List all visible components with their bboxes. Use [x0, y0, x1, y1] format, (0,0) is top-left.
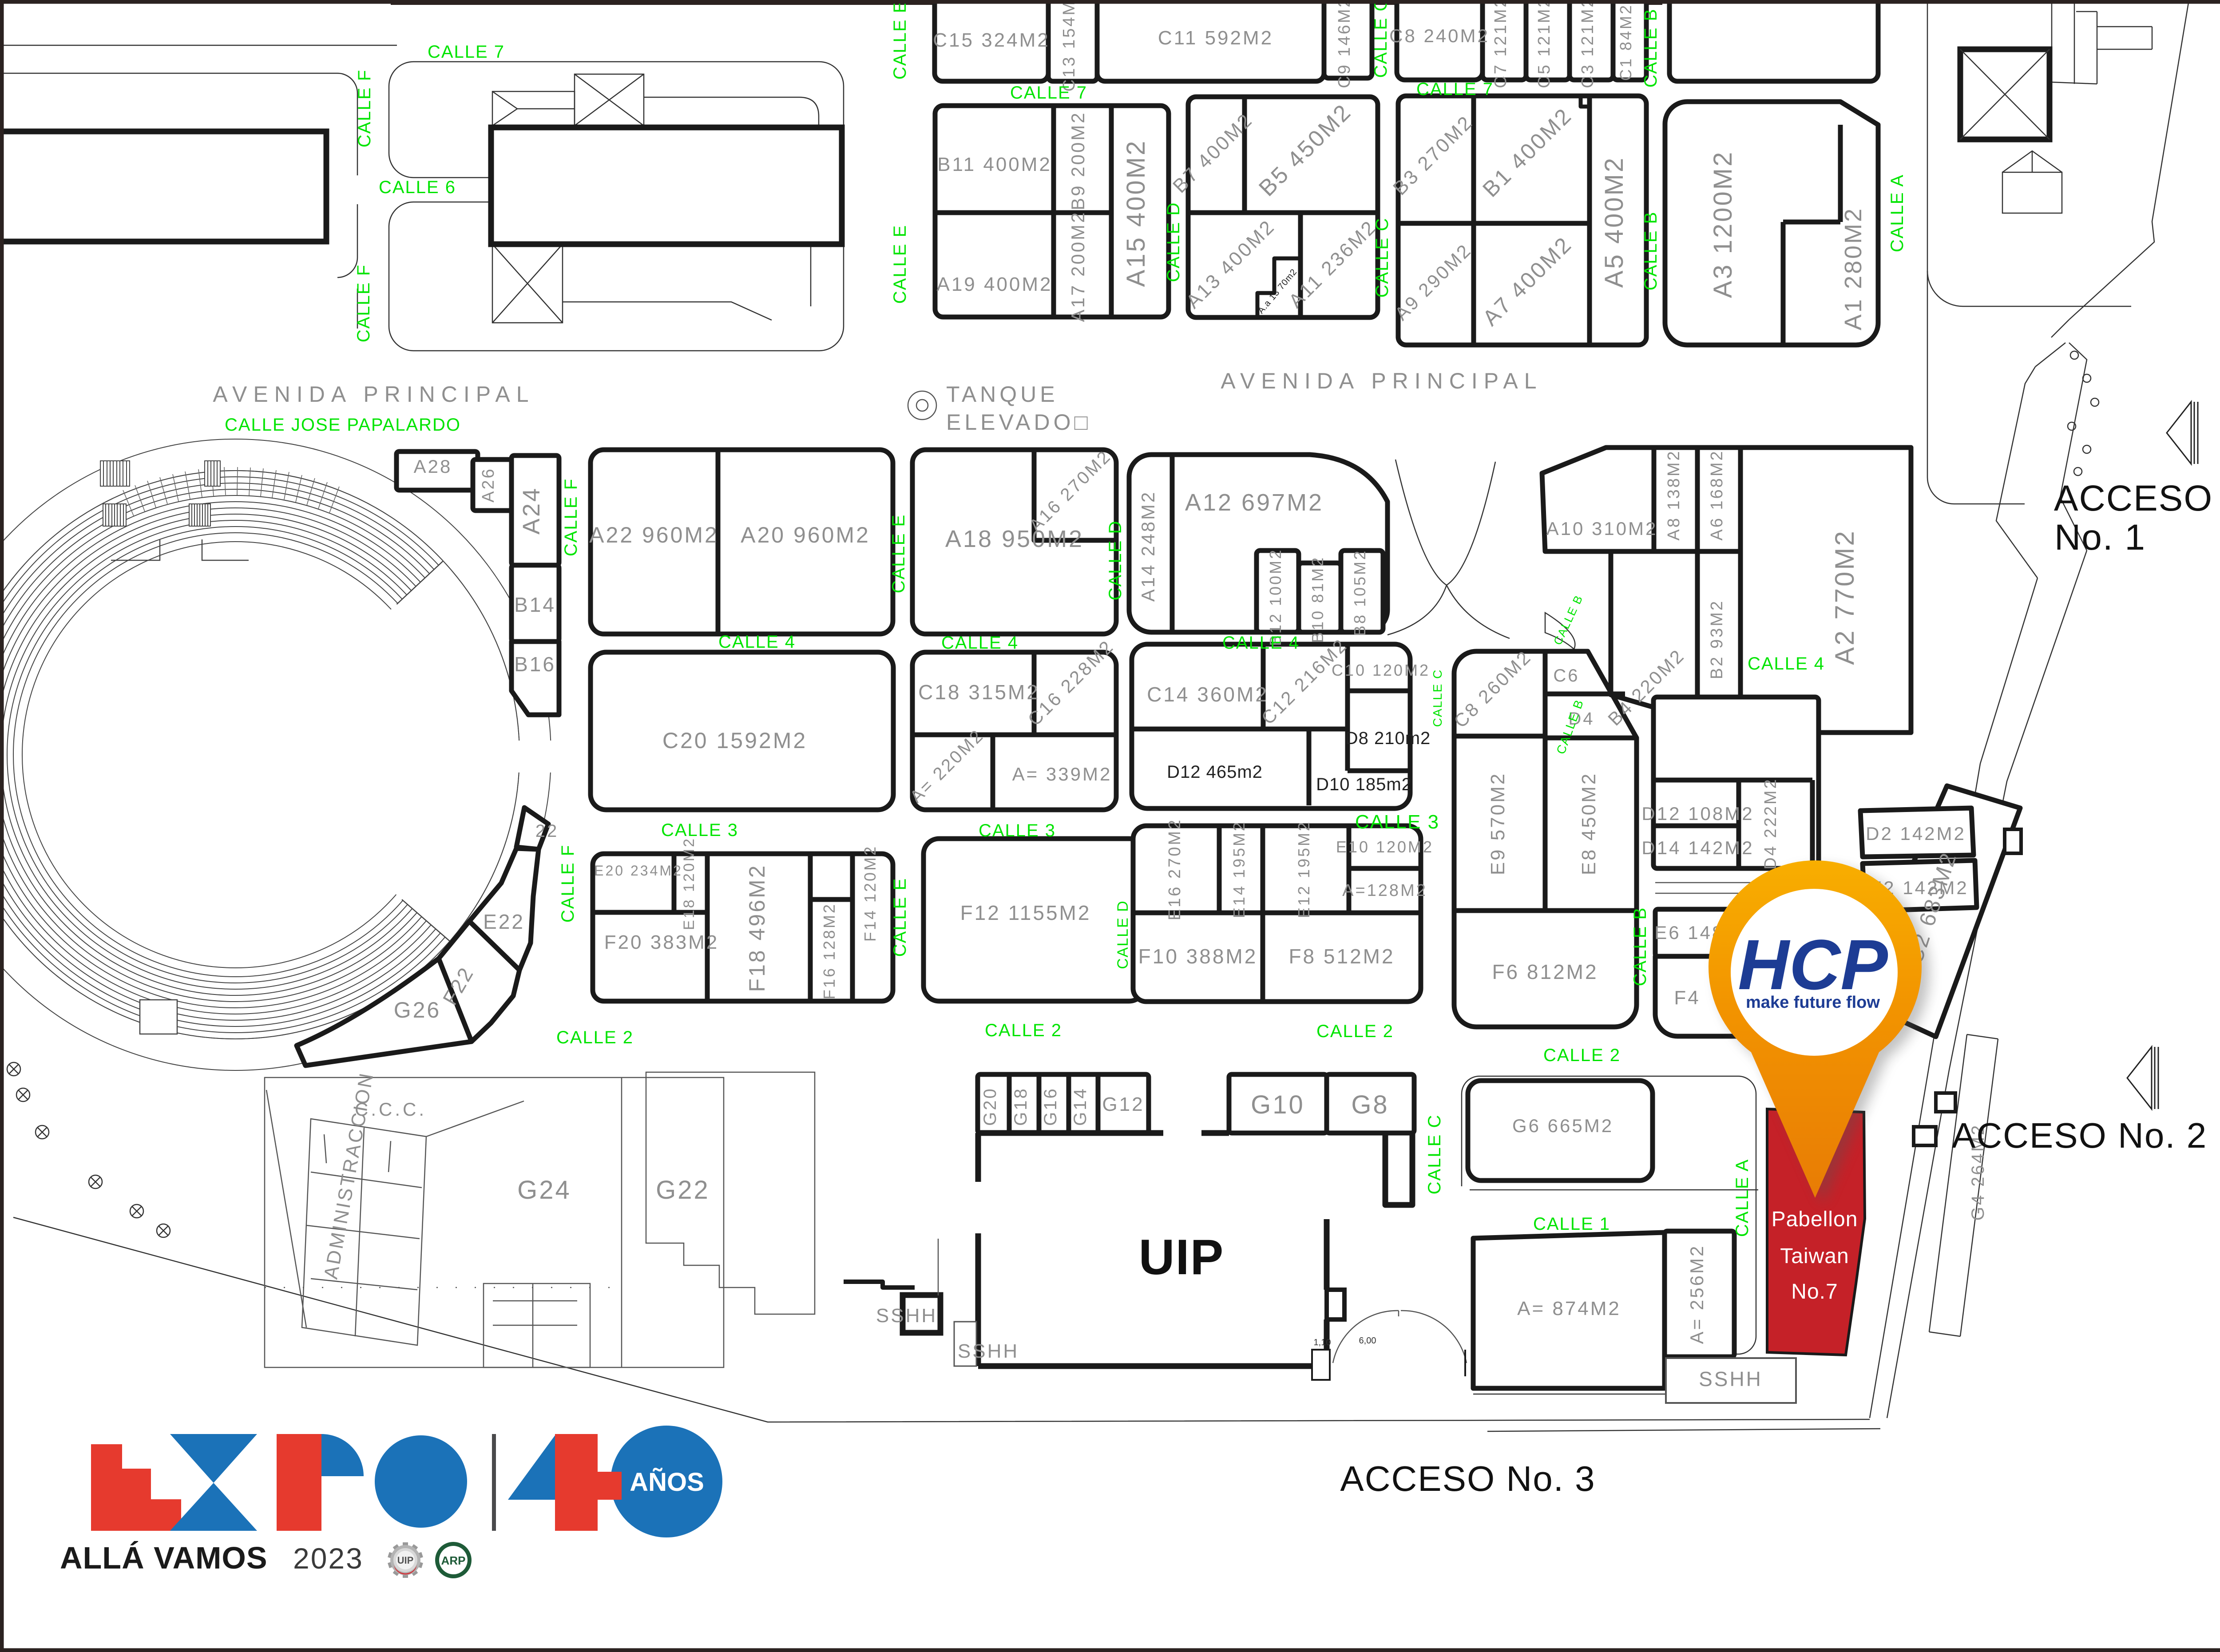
svg-text:CALLE 4: CALLE 4	[1748, 654, 1825, 673]
svg-text:D12 465m2: D12 465m2	[1167, 762, 1263, 782]
svg-text:No. 1: No. 1	[2054, 517, 2146, 558]
svg-text:CALLE 2: CALLE 2	[556, 1028, 634, 1047]
svg-text:CALLE 4: CALLE 4	[941, 633, 1019, 653]
svg-text:CALLE 7: CALLE 7	[428, 42, 505, 62]
svg-text:A5 400M2: A5 400M2	[1600, 156, 1629, 288]
svg-text:No.7: No.7	[1791, 1280, 1838, 1303]
svg-text:E18 120M2: E18 120M2	[681, 837, 698, 930]
svg-text:CALLE B: CALLE B	[1641, 211, 1661, 291]
svg-text:ARP: ARP	[441, 1554, 466, 1567]
svg-text:F14 120M2: F14 120M2	[861, 845, 879, 942]
svg-text:E10 120M2: E10 120M2	[1336, 838, 1434, 856]
svg-text:D8 210m2: D8 210m2	[1345, 729, 1431, 748]
svg-text:TANQUE: TANQUE	[946, 382, 1058, 407]
svg-text:CALLE 1: CALLE 1	[1533, 1214, 1610, 1234]
svg-text:A= 874M2: A= 874M2	[1517, 1298, 1621, 1319]
svg-text:A3 1200M2: A3 1200M2	[1709, 151, 1737, 298]
svg-text:AVENIDA PRINCIPAL: AVENIDA PRINCIPAL	[1221, 368, 1542, 393]
svg-text:22: 22	[535, 821, 559, 841]
svg-text:CALLE D: CALLE D	[1114, 900, 1131, 969]
svg-text:E8 450M2: E8 450M2	[1578, 772, 1600, 876]
svg-text:C9 146M2: C9 146M2	[1335, 0, 1354, 88]
svg-text:D2 142M2: D2 142M2	[1866, 823, 1966, 844]
svg-text:C15 324M2: C15 324M2	[933, 29, 1050, 51]
svg-text:E22: E22	[483, 910, 525, 933]
svg-text:C7 121M2: C7 121M2	[1491, 0, 1510, 88]
svg-text:G22: G22	[656, 1176, 710, 1204]
svg-text:F8 512M2: F8 512M2	[1288, 945, 1395, 968]
svg-text:G10: G10	[1251, 1090, 1305, 1119]
svg-text:CALLE C: CALLE C	[1371, 0, 1391, 78]
svg-text:C18 315M2: C18 315M2	[918, 681, 1040, 704]
svg-text:C8 240M2: C8 240M2	[1389, 25, 1490, 46]
svg-text:A26: A26	[479, 467, 498, 503]
svg-text:CALLE E: CALLE E	[890, 225, 910, 304]
svg-text:A22 960M2: A22 960M2	[589, 523, 719, 547]
svg-text:CALLE B: CALLE B	[1641, 8, 1661, 88]
svg-text:CALLE 6: CALLE 6	[379, 178, 456, 197]
svg-text:CALLE E: CALLE E	[890, 0, 910, 80]
svg-text:A8 138M2: A8 138M2	[1665, 449, 1683, 540]
svg-text:AVENIDA PRINCIPAL: AVENIDA PRINCIPAL	[213, 382, 535, 407]
svg-text:1,10: 1,10	[1314, 1338, 1331, 1347]
svg-text:A14 248M2: A14 248M2	[1138, 491, 1158, 602]
svg-text:ALLÁ VAMOS: ALLÁ VAMOS	[60, 1541, 268, 1575]
svg-text:A12 697M2: A12 697M2	[1185, 489, 1324, 516]
svg-text:G16: G16	[1041, 1087, 1060, 1126]
svg-text:C10 120M2: C10 120M2	[1332, 661, 1430, 679]
svg-text:D10 185m2: D10 185m2	[1316, 775, 1412, 794]
svg-text:F10 388M2: F10 388M2	[1138, 945, 1258, 968]
svg-text:D4 222M2: D4 222M2	[1761, 777, 1780, 869]
svg-text:G14: G14	[1070, 1087, 1090, 1126]
svg-text:CALLE 7: CALLE 7	[1416, 79, 1494, 99]
svg-text:CALLE C: CALLE C	[1431, 669, 1444, 727]
svg-text:C14 360M2: C14 360M2	[1147, 683, 1269, 706]
svg-text:G12: G12	[1102, 1093, 1144, 1115]
svg-text:A24: A24	[518, 487, 545, 535]
svg-text:A18 950M2: A18 950M2	[945, 526, 1084, 552]
svg-text:G26: G26	[394, 998, 441, 1022]
svg-text:ACCESO No. 3: ACCESO No. 3	[1340, 1459, 1595, 1498]
svg-text:ACCESO No. 2: ACCESO No. 2	[1952, 1116, 2207, 1155]
svg-text:A1 280M2: A1 280M2	[1840, 207, 1867, 330]
svg-text:C13 154M2: C13 154M2	[1060, 0, 1078, 91]
svg-text:UIP: UIP	[397, 1555, 414, 1566]
svg-text:CALLE B: CALLE B	[1630, 907, 1650, 986]
svg-text:ELEVADO□: ELEVADO□	[946, 410, 1091, 435]
svg-text:AÑOS: AÑOS	[630, 1468, 704, 1497]
svg-text:G6 665M2: G6 665M2	[1512, 1115, 1613, 1136]
svg-text:SSHH: SSHH	[1699, 1367, 1763, 1391]
svg-text:SSHH: SSHH	[876, 1305, 937, 1327]
svg-text:B11 400M2: B11 400M2	[937, 154, 1052, 175]
svg-text:B9 200M2: B9 200M2	[1067, 111, 1088, 210]
svg-text:Pabellon: Pabellon	[1772, 1208, 1858, 1231]
svg-text:A10 310M2: A10 310M2	[1546, 518, 1658, 539]
svg-text:C5 121M2: C5 121M2	[1535, 0, 1554, 88]
svg-text:CALLE C: CALLE C	[1425, 1114, 1444, 1195]
svg-text:B16: B16	[514, 653, 556, 676]
svg-text:CALLE 2: CALLE 2	[985, 1021, 1062, 1040]
svg-text:CALLE 2: CALLE 2	[1316, 1022, 1394, 1041]
svg-text:UIP: UIP	[1139, 1229, 1225, 1285]
svg-text:D12 108M2: D12 108M2	[1641, 803, 1754, 824]
svg-text:A17 200M2: A17 200M2	[1067, 211, 1088, 322]
svg-text:C3 121M2: C3 121M2	[1578, 0, 1597, 88]
svg-text:B2 93M2: B2 93M2	[1708, 599, 1726, 679]
svg-text:CALLE D: CALLE D	[1164, 202, 1183, 282]
svg-text:CALLE 4: CALLE 4	[718, 632, 796, 652]
svg-text:F4: F4	[1674, 987, 1700, 1009]
svg-text:HCP: HCP	[1738, 925, 1888, 1004]
svg-text:ACCESO: ACCESO	[2054, 478, 2213, 519]
svg-text:A20 960M2: A20 960M2	[741, 523, 870, 547]
svg-text:A= 256M2: A= 256M2	[1686, 1244, 1707, 1344]
svg-text:make future flow: make future flow	[1746, 993, 1880, 1012]
svg-text:G24: G24	[517, 1176, 571, 1204]
svg-text:C1 84M2: C1 84M2	[1617, 4, 1635, 81]
svg-text:E9 570M2: E9 570M2	[1487, 772, 1509, 876]
svg-text:E16 270M2: E16 270M2	[1165, 818, 1184, 920]
svg-text:A2 770M2: A2 770M2	[1830, 529, 1859, 665]
svg-text:B12 100M2: B12 100M2	[1266, 548, 1284, 646]
svg-text:CALLE JOSE PAPALARDO: CALLE JOSE PAPALARDO	[225, 415, 461, 435]
svg-text:CALLE E: CALLE E	[890, 878, 910, 957]
svg-text:G20: G20	[980, 1087, 1000, 1126]
svg-text:B10 81M2: B10 81M2	[1308, 556, 1327, 643]
svg-text:B8 105M2: B8 105M2	[1351, 549, 1369, 636]
svg-text:F18 496M2: F18 496M2	[745, 864, 769, 992]
svg-text:CALLE 2: CALLE 2	[1543, 1046, 1621, 1065]
svg-text:CALLE F: CALLE F	[561, 478, 581, 556]
svg-text:C11 592M2: C11 592M2	[1158, 27, 1273, 49]
svg-text:F6 812M2: F6 812M2	[1492, 960, 1598, 983]
svg-text:CALLE F: CALLE F	[354, 264, 373, 342]
svg-text:CALLE 4: CALLE 4	[1222, 633, 1300, 653]
svg-text:F16 128M2: F16 128M2	[820, 903, 838, 999]
svg-text:C6: C6	[1553, 666, 1579, 685]
svg-text:CALLE F: CALLE F	[558, 844, 578, 923]
svg-text:CALLE C: CALLE C	[1372, 218, 1392, 298]
svg-text:G8: G8	[1351, 1090, 1389, 1119]
svg-text:Taiwan: Taiwan	[1780, 1244, 1849, 1268]
svg-text:E14 195M2: E14 195M2	[1230, 820, 1248, 918]
svg-text:C20 1592M2: C20 1592M2	[662, 728, 807, 753]
svg-text:A15 400M2: A15 400M2	[1122, 139, 1150, 287]
svg-text:CALLE 3: CALLE 3	[1355, 811, 1439, 833]
svg-text:A= 339M2: A= 339M2	[1012, 764, 1112, 784]
svg-text:SSHH: SSHH	[958, 1340, 1019, 1362]
svg-text:CALLE A: CALLE A	[1732, 1159, 1752, 1237]
svg-text:A6 168M2: A6 168M2	[1708, 449, 1726, 540]
svg-text:E12 195M2: E12 195M2	[1295, 820, 1313, 918]
svg-text:CALLE A: CALLE A	[1887, 174, 1907, 252]
svg-text:CALLE 3: CALLE 3	[979, 821, 1056, 840]
svg-text:CALLE F: CALLE F	[355, 69, 374, 147]
svg-text:D14 142M2: D14 142M2	[1641, 837, 1754, 858]
svg-text:F12 1155M2: F12 1155M2	[960, 901, 1091, 924]
svg-text:2023: 2023	[293, 1542, 364, 1575]
svg-text:E20 234M2: E20 234M2	[594, 863, 683, 879]
svg-text:A=128M2: A=128M2	[1342, 881, 1427, 900]
svg-text:CALLE E: CALLE E	[889, 514, 908, 594]
svg-text:B14: B14	[514, 593, 556, 616]
svg-text:F20 383M2: F20 383M2	[604, 931, 719, 953]
svg-text:CALLE 7: CALLE 7	[1010, 83, 1087, 103]
svg-text:6,00: 6,00	[1359, 1336, 1376, 1346]
svg-text:G18: G18	[1011, 1087, 1031, 1126]
svg-text:A19 400M2: A19 400M2	[936, 273, 1052, 295]
svg-text:CALLE 3: CALLE 3	[661, 820, 738, 840]
svg-text:CALLE D: CALLE D	[1106, 520, 1125, 601]
svg-text:A28: A28	[414, 456, 452, 477]
